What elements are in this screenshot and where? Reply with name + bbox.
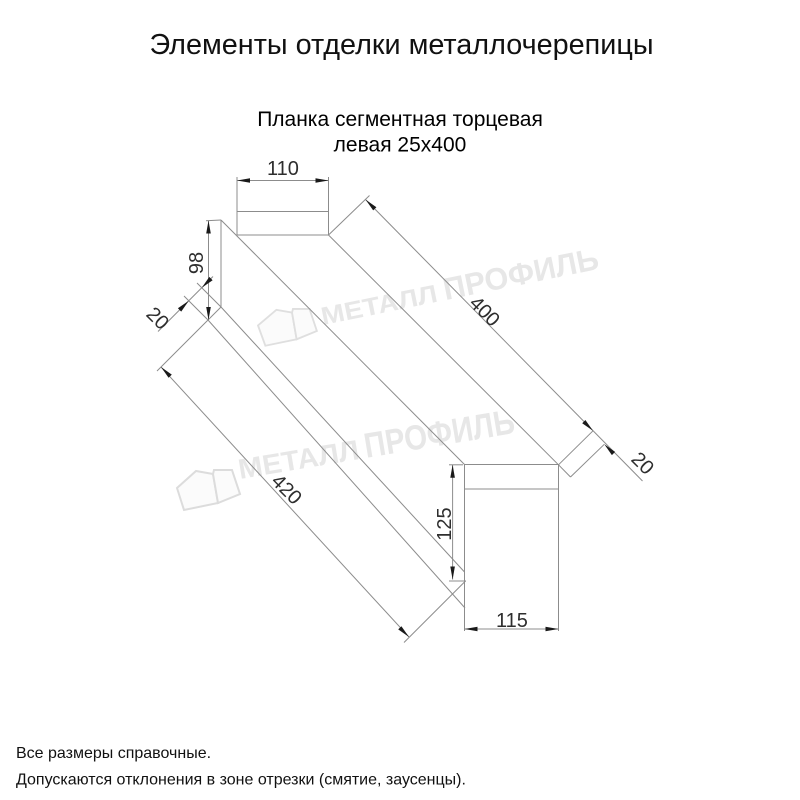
svg-text:Планка сегментная торцевая: Планка сегментная торцевая <box>257 108 543 131</box>
svg-text:115: 115 <box>496 610 528 632</box>
svg-text:Все размеры справочные.: Все размеры справочные. <box>16 745 211 762</box>
svg-text:Элементы отделки металлочерепи: Элементы отделки металлочерепицы <box>149 29 653 61</box>
svg-text:левая 25х400: левая 25х400 <box>334 134 467 157</box>
svg-text:110: 110 <box>267 158 299 180</box>
svg-text:Допускаются отклонения в зоне: Допускаются отклонения в зоне отрезки (с… <box>16 772 466 789</box>
svg-text:125: 125 <box>434 507 456 540</box>
svg-text:98: 98 <box>186 252 208 274</box>
